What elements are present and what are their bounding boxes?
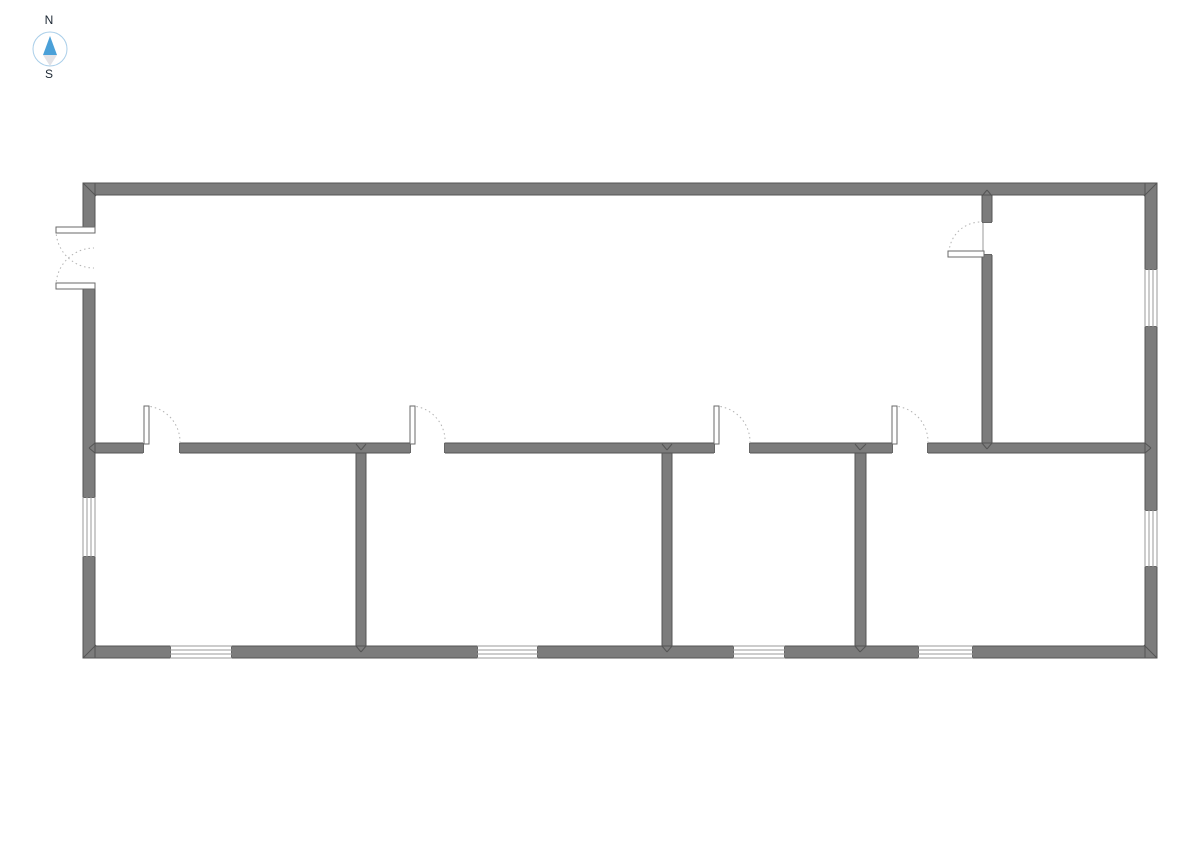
wall-interior-room2-room3: [662, 453, 672, 646]
door-top-right-room: [948, 251, 984, 257]
door-swing-arc-icon: [716, 406, 750, 443]
compass-north-label: N: [45, 13, 54, 27]
window-right-top-right-room: [1144, 269, 1158, 327]
window-bottom-room2: [477, 645, 538, 659]
wall-interior-room1-room2: [356, 453, 366, 646]
window-bottom-room3: [733, 645, 785, 659]
window-right-room4: [1144, 510, 1158, 567]
door-swing-arc-icon: [949, 222, 982, 252]
door-room1: [144, 406, 149, 444]
compass: N S: [33, 13, 67, 81]
entry-door-opening: [82, 227, 96, 289]
wall-exterior-bottom: [83, 646, 1157, 658]
door-swing-arc-icon: [146, 406, 180, 443]
window-bottom-room4: [918, 645, 973, 659]
floorplan-page: N S: [0, 0, 1191, 842]
door-swing-arc-icon: [412, 406, 445, 443]
window-bottom-room1: [170, 645, 232, 659]
floorplan-geometry: [56, 183, 1158, 659]
compass-needle-north-icon: [43, 36, 57, 55]
window-left-room1: [82, 497, 96, 557]
wall-interior-room3-room4: [855, 453, 866, 646]
entry-double-door-leaf-bottom: [56, 283, 95, 289]
entry-double-door-leaf-top: [56, 227, 95, 233]
door-room2: [410, 406, 415, 444]
door-swing-arc-icon: [894, 406, 928, 443]
wall-exterior-right: [1145, 183, 1157, 658]
wall-exterior-top: [83, 183, 1157, 195]
door-room4: [892, 406, 897, 444]
compass-south-label: S: [45, 67, 53, 81]
door-room3: [714, 406, 719, 444]
floorplan-svg: N S: [0, 0, 1191, 842]
compass-needle-south-icon: [43, 55, 57, 66]
